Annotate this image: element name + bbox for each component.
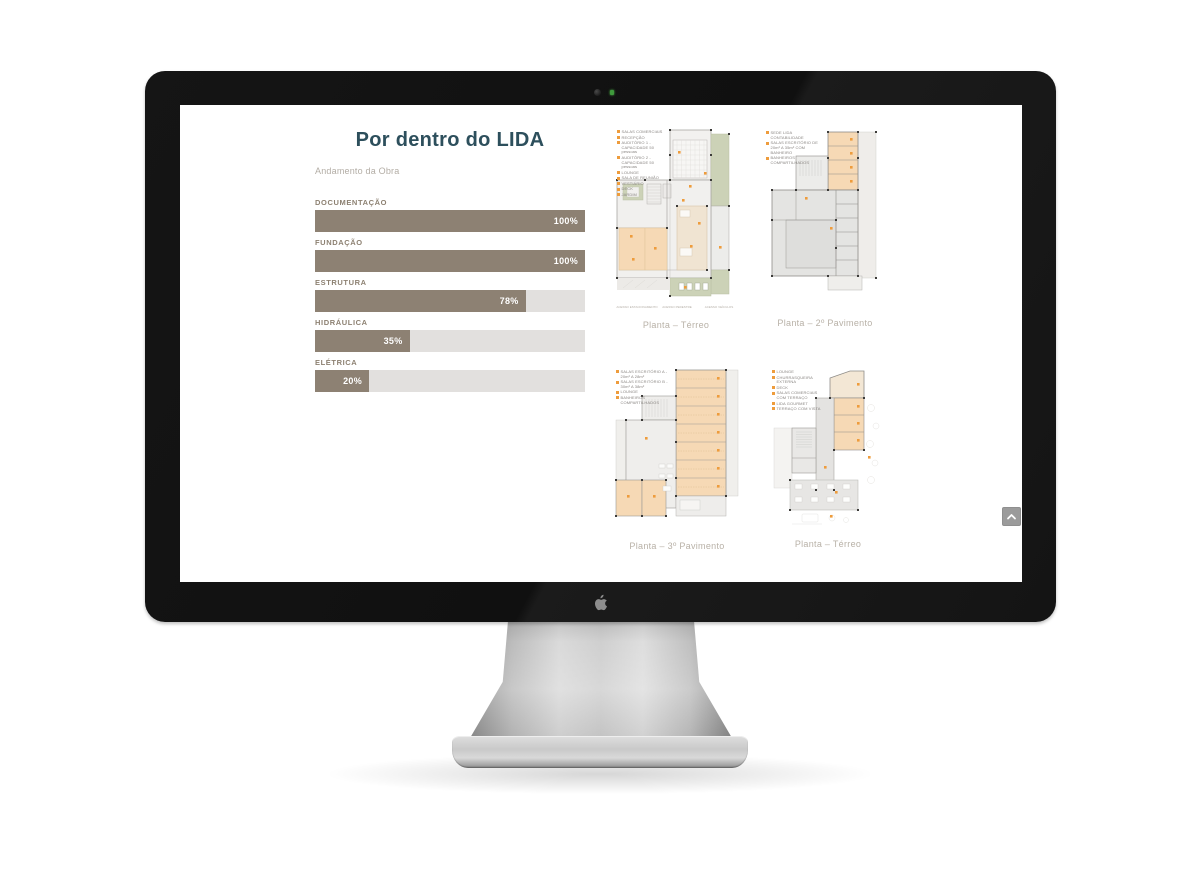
legend-marker-icon [617, 188, 620, 191]
progress-track: 100% [315, 250, 585, 272]
legend-item: SALAS ESCRITÓRIO B - 30m² A 38m² [616, 380, 670, 389]
progress-label: HIDRÁULICA [315, 318, 585, 327]
legend-marker-icon [772, 376, 775, 379]
scroll-to-top-button[interactable] [1002, 507, 1021, 526]
legend-item: SALAS ESCRITÓRIO A - 20m² A 28m² [616, 370, 670, 379]
svg-text:ACESSO ESTACIONAMENTO: ACESSO ESTACIONAMENTO [616, 305, 658, 309]
progress-section: DOCUMENTAÇÃO 100% FUNDAÇÃO 100% [315, 198, 585, 398]
progress-group: HIDRÁULICA 35% [315, 318, 585, 352]
progress-track: 100% [315, 210, 585, 232]
progress-value: 100% [554, 216, 585, 226]
page-title: Por dentro do LIDA [315, 129, 585, 152]
legend-marker-icon [772, 402, 775, 405]
legend-item: SALAS ESCRITÓRIO DE 20m² A 35m² COM BANH… [766, 141, 822, 155]
legend-item: JARDIM [617, 193, 665, 198]
legend-marker-icon [617, 141, 620, 144]
plan-caption: Planta – Térreo [615, 320, 737, 330]
plan-legend: SEDE LIDA CONTABILIDADE SALAS ESCRITÓRIO… [766, 131, 822, 166]
legend-item: CHURRASQUEIRA EXTERNA [772, 376, 826, 385]
progress-group: FUNDAÇÃO 100% [315, 238, 585, 272]
legend-marker-icon [766, 157, 769, 160]
page-subtitle: Andamento da Obra [315, 166, 585, 176]
legend-marker-icon [616, 381, 619, 384]
legend-marker-icon [617, 171, 620, 174]
progress-fill: 35% [315, 330, 410, 352]
camera-led-icon [610, 90, 614, 95]
legend-item: SEDE LIDA CONTABILIDADE [766, 131, 822, 140]
legend-item: SALAS COMERCIAIS COM TERRAÇO [772, 391, 826, 400]
progress-label: ELÉTRICA [315, 358, 585, 367]
progress-label: ESTRUTURA [315, 278, 585, 287]
progress-value: 20% [343, 376, 369, 386]
svg-text:ACESSO PEDESTRE: ACESSO PEDESTRE [662, 305, 692, 309]
legend-marker-icon [766, 131, 769, 134]
monitor-bezel: Por dentro do LIDA Andamento da Obra DOC… [145, 71, 1056, 622]
legend-marker-icon [617, 156, 620, 159]
legend-marker-icon [617, 193, 620, 196]
progress-value: 100% [554, 256, 585, 266]
apple-logo-icon [591, 593, 608, 613]
screen: Por dentro do LIDA Andamento da Obra DOC… [180, 105, 1022, 582]
legend-marker-icon [616, 396, 619, 399]
progress-track: 78% [315, 290, 585, 312]
plan-caption: Planta – 3º Pavimento [614, 541, 740, 551]
legend-marker-icon [616, 391, 619, 394]
legend-marker-icon [772, 386, 775, 389]
progress-group: ESTRUTURA 78% [315, 278, 585, 312]
floor-plan-figure: LOUNGE CHURRASQUEIRA EXTERNA DECK SALAS … [772, 368, 884, 549]
svg-text:ACESSO VEÍCULOS: ACESSO VEÍCULOS [705, 305, 734, 309]
floor-plan-figure: SEDE LIDA CONTABILIDADE SALAS ESCRITÓRIO… [766, 128, 884, 328]
floor-plan-figure: SALAS ESCRITÓRIO A - 20m² A 28m² SALAS E… [614, 368, 740, 551]
legend-item: LOUNGE [772, 370, 826, 375]
legend-marker-icon [772, 370, 775, 373]
monitor-stand-neck [470, 621, 732, 738]
legend-item: BANHEIROS COMPARTILHADOS [766, 156, 822, 165]
legend-item: AUDITÓRIO 2 - CAPACIDADE 50 pessoas [617, 156, 665, 170]
legend-marker-icon [617, 136, 620, 139]
webcam-icon [594, 89, 601, 96]
legend-marker-icon [766, 142, 769, 145]
chevron-up-icon [1006, 511, 1017, 522]
legend-item: AUDITÓRIO 1 - CAPACIDADE 50 pessoas [617, 141, 665, 155]
scene: Por dentro do LIDA Andamento da Obra DOC… [0, 0, 1200, 877]
progress-fill: 20% [315, 370, 369, 392]
legend-item: BANHEIROS COMPARTILHADOS [616, 396, 670, 405]
legend-marker-icon [772, 407, 775, 410]
plan-caption: Planta – Térreo [772, 539, 884, 549]
legend-marker-icon [617, 177, 620, 180]
progress-track: 35% [315, 330, 585, 352]
plan-legend: LOUNGE CHURRASQUEIRA EXTERNA DECK SALAS … [772, 370, 826, 413]
legend-marker-icon [616, 370, 619, 373]
legend-marker-icon [772, 392, 775, 395]
legend-item: SALAS COMERCIAIS [617, 130, 665, 135]
plan-legend: SALAS COMERCIAIS RECEPÇÃO AUDITÓRIO 1 - … [617, 130, 665, 199]
progress-track: 20% [315, 370, 585, 392]
legend-marker-icon [617, 130, 620, 133]
progress-value: 35% [384, 336, 410, 346]
monitor-stand-base [452, 736, 748, 768]
progress-label: DOCUMENTAÇÃO [315, 198, 585, 207]
progress-label: FUNDAÇÃO [315, 238, 585, 247]
progress-group: DOCUMENTAÇÃO 100% [315, 198, 585, 232]
plan-legend: SALAS ESCRITÓRIO A - 20m² A 28m² SALAS E… [616, 370, 670, 406]
legend-item: TERRAÇO COM VISTA [772, 407, 826, 412]
progress-fill: 100% [315, 250, 585, 272]
progress-fill: 78% [315, 290, 526, 312]
progress-value: 78% [500, 296, 526, 306]
progress-group: ELÉTRICA 20% [315, 358, 585, 392]
floor-plan-figure: ACESSO ESTACIONAMENTO ACESSO PEDESTRE AC… [615, 128, 737, 330]
legend-marker-icon [617, 182, 620, 185]
plan-caption: Planta – 2º Pavimento [766, 318, 884, 328]
progress-fill: 100% [315, 210, 585, 232]
